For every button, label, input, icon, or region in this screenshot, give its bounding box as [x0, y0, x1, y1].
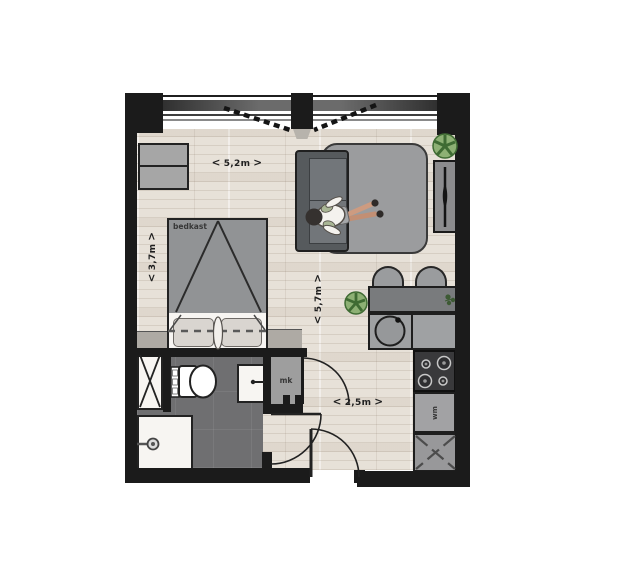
pillow-right [221, 318, 262, 347]
chevron-left-icon: < [333, 396, 342, 408]
sofa-cushion-divider [309, 200, 347, 201]
dimension-bed-depth: <3,7m> [146, 229, 158, 286]
wall-shaft-right [163, 352, 171, 412]
bar-table [368, 286, 457, 313]
chevron-right-icon: > [253, 157, 262, 169]
murphy-bed-cabinet [167, 218, 268, 315]
shower [137, 415, 193, 470]
floor-plan: bedkast mk wm [0, 0, 640, 587]
wall-bottom-left [125, 468, 310, 483]
wall-corner-top-left [125, 93, 163, 133]
dimension-top-width: <5,2m> [209, 157, 266, 169]
pillow-left [173, 318, 214, 347]
dimension-value: 3,7m [148, 244, 158, 271]
dimension-value: 5,7m [314, 286, 324, 313]
kitchen-counter-right [413, 313, 457, 350]
washbasin [237, 364, 265, 403]
wall-left [125, 93, 137, 483]
chevron-right-icon: > [312, 274, 324, 283]
kitchen-counter-sink [368, 313, 413, 350]
chevron-right-icon: > [146, 232, 158, 241]
tall-cabinet [413, 433, 458, 472]
chevron-left-icon: < [146, 273, 158, 282]
chevron-left-icon: < [212, 157, 221, 169]
chevron-left-icon: < [312, 315, 324, 324]
sofa-seat-cushions [309, 158, 347, 244]
wall-meter-closet-bottom [268, 404, 303, 413]
washing-machine-label: wm [413, 392, 456, 433]
stove [413, 350, 456, 392]
dimension-value: 2,5m [345, 398, 372, 408]
dimension-room-length: <5,7m> [312, 271, 324, 328]
wall-bathroom-door-stub [262, 452, 272, 470]
bed-cabinet-label: bedkast [173, 222, 207, 231]
window-center-pillar [291, 93, 313, 129]
wall-bottom-right [357, 471, 470, 487]
dimension-value: 5,2m [224, 159, 251, 169]
wardrobe-divider [140, 165, 187, 167]
dimension-hall-width: <2,5m> [330, 396, 387, 408]
meter-closet-foot-left [283, 395, 290, 405]
wall-right [455, 93, 470, 487]
chevron-right-icon: > [374, 396, 383, 408]
meter-closet-foot-right [295, 395, 302, 405]
duct-shaft [137, 352, 163, 410]
